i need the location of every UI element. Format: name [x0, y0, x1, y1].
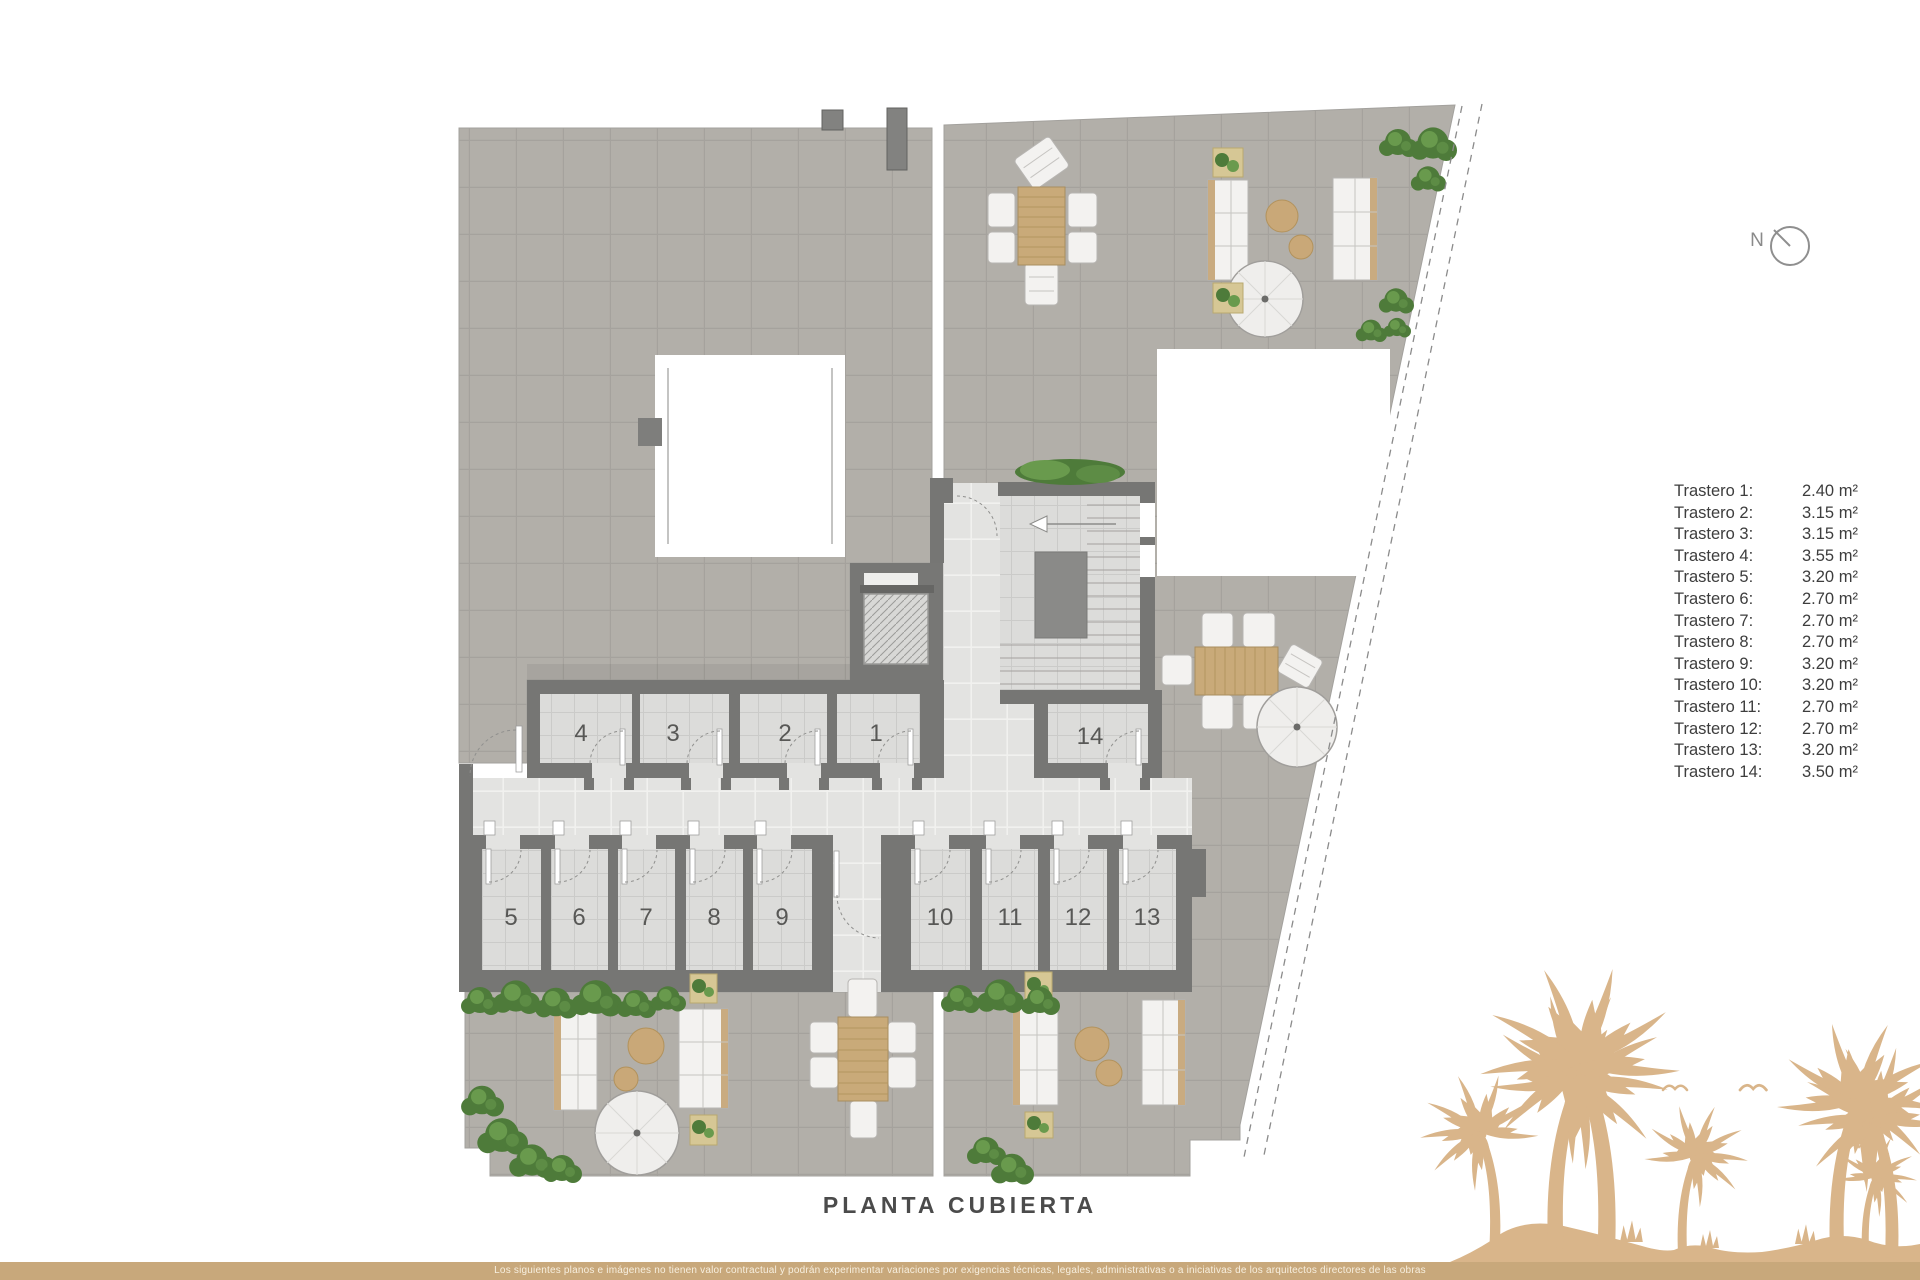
legend-row-value: 2.40 m² [1802, 481, 1874, 503]
room-label-4: 4 [574, 720, 587, 747]
grass-tuft [1700, 1230, 1719, 1248]
legend-row: Trastero 7: 2.70 m² [1674, 611, 1874, 633]
parasol [595, 1091, 679, 1175]
legend-row-label: Trastero 3: [1674, 524, 1802, 546]
room-label-11: 11 [998, 904, 1023, 931]
legend-row: Trastero 14: 3.50 m² [1674, 762, 1874, 784]
north-compass: N [1750, 227, 1809, 265]
room-label-9: 9 [775, 904, 788, 931]
parasol [1257, 687, 1337, 767]
corridor-west-door-leaf [516, 726, 522, 772]
room-label-5: 5 [504, 904, 517, 931]
wood-table-middle [1195, 647, 1278, 695]
room-label-7: 7 [639, 904, 652, 931]
floorplan-canvas: 4 3 2 1 14 [0, 0, 1920, 1280]
storage-passage [833, 835, 881, 992]
legend-row-label: Trastero 12: [1674, 719, 1802, 741]
side-table [1289, 235, 1313, 259]
footer-disclaimer: Los siguientes planos e imágenes no tien… [0, 1265, 1920, 1276]
room-label-3: 3 [666, 720, 679, 747]
skylight-void-left [638, 355, 845, 557]
legend-row-label: Trastero 2: [1674, 503, 1802, 525]
legend-row-label: Trastero 9: [1674, 654, 1802, 676]
legend-row: Trastero 5: 3.20 m² [1674, 567, 1874, 589]
elevator [850, 563, 943, 690]
coffee-table [1075, 1027, 1109, 1061]
legend-row-value: 3.15 m² [1802, 503, 1874, 525]
legend-row-value: 3.55 m² [1802, 546, 1874, 568]
grass-tuft [1620, 1220, 1643, 1242]
legend-row: Trastero 8: 2.70 m² [1674, 632, 1874, 654]
room-label-6: 6 [572, 904, 585, 931]
storage-block-room14: 14 [1034, 690, 1162, 790]
core-corridor-floor [944, 483, 1000, 778]
legend-row-value: 2.70 m² [1802, 719, 1874, 741]
legend-row: Trastero 1: 2.40 m² [1674, 481, 1874, 503]
room-label-13: 13 [1134, 904, 1161, 931]
stair-hedge [1015, 459, 1125, 485]
legend-row-label: Trastero 4: [1674, 546, 1802, 568]
legend-row-label: Trastero 5: [1674, 567, 1802, 589]
legend-row: Trastero 2: 3.15 m² [1674, 503, 1874, 525]
room-label-14: 14 [1077, 723, 1104, 750]
legend-row-value: 2.70 m² [1802, 611, 1874, 633]
legend-row: Trastero 4: 3.55 m² [1674, 546, 1874, 568]
legend-row-value: 3.20 m² [1802, 567, 1874, 589]
legend-row-value: 3.20 m² [1802, 654, 1874, 676]
room-label-8: 8 [707, 904, 720, 931]
skylight-void-right [1157, 349, 1390, 576]
compass-n-label: N [1750, 230, 1764, 251]
coffee-table [628, 1028, 664, 1064]
legend-row-label: Trastero 7: [1674, 611, 1802, 633]
chimney-tall [887, 108, 907, 170]
legend-row-label: Trastero 13: [1674, 740, 1802, 762]
legend-row-label: Trastero 11: [1674, 697, 1802, 719]
legend-row: Trastero 10: 3.20 m² [1674, 675, 1874, 697]
legend-row: Trastero 6: 2.70 m² [1674, 589, 1874, 611]
legend-row-value: 3.20 m² [1802, 740, 1874, 762]
storage-block-lower-west: 5 6 7 8 9 [459, 821, 833, 992]
skylight-tab [638, 418, 662, 446]
room-label-12: 12 [1065, 904, 1092, 931]
corridor-below-stair [1000, 704, 1034, 778]
legend-row: Trastero 9: 3.20 m² [1674, 654, 1874, 676]
wood-table-top [1018, 187, 1065, 265]
legend-row: Trastero 11: 2.70 m² [1674, 697, 1874, 719]
legend-row-value: 3.20 m² [1802, 675, 1874, 697]
legend-row-value: 2.70 m² [1802, 589, 1874, 611]
storage-legend: Trastero 1: 2.40 m² Trastero 2: 3.15 m² … [1674, 481, 1874, 783]
grass-tuft [1795, 1224, 1816, 1244]
legend-row-value: 2.70 m² [1802, 697, 1874, 719]
legend-row-label: Trastero 1: [1674, 481, 1802, 503]
room-label-1: 1 [869, 720, 882, 747]
legend-row-label: Trastero 8: [1674, 632, 1802, 654]
legend-row: Trastero 13: 3.20 m² [1674, 740, 1874, 762]
chimney-small [822, 110, 843, 130]
page-title: PLANTA CUBIERTA [0, 1192, 1920, 1219]
compass-needle [1774, 230, 1790, 246]
legend-row-value: 3.15 m² [1802, 524, 1874, 546]
legend-row-value: 3.50 m² [1802, 762, 1874, 784]
legend-row: Trastero 3: 3.15 m² [1674, 524, 1874, 546]
legend-row: Trastero 12: 2.70 m² [1674, 719, 1874, 741]
side-table [1096, 1060, 1122, 1086]
storage-block-upper: 4 3 2 1 [527, 680, 944, 790]
storage-block-lower-east: 10 11 12 13 [881, 821, 1206, 992]
coffee-table [1266, 200, 1298, 232]
room-label-10: 10 [927, 904, 954, 931]
side-table [614, 1067, 638, 1091]
room-label-2: 2 [778, 720, 791, 747]
legend-row-label: Trastero 6: [1674, 589, 1802, 611]
stair-landing [1035, 552, 1087, 638]
wood-table-bottom [838, 1017, 888, 1101]
legend-row-label: Trastero 10: [1674, 675, 1802, 697]
legend-row-value: 2.70 m² [1802, 632, 1874, 654]
legend-row-label: Trastero 14: [1674, 762, 1802, 784]
